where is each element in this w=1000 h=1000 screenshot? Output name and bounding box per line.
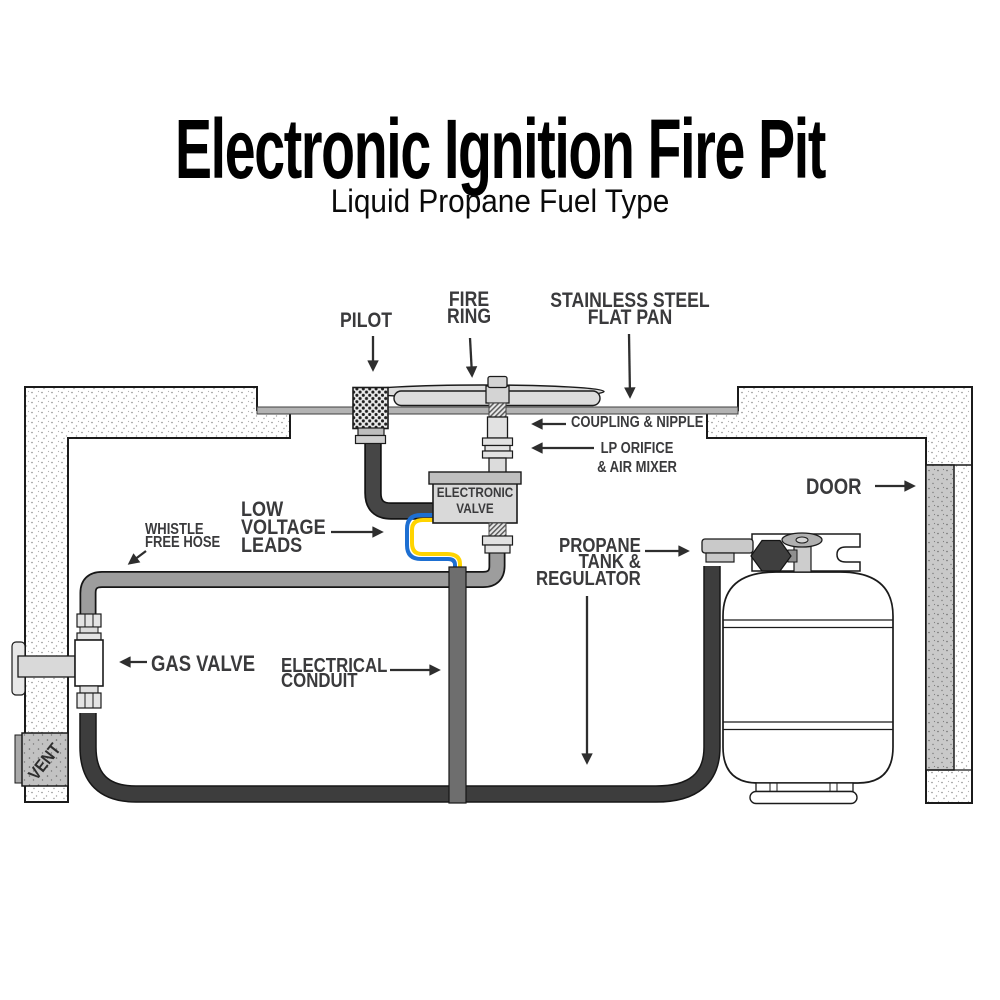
fire-ring-arrow	[470, 338, 472, 375]
label-whistle-hose-line2: FREE HOSE	[145, 537, 220, 550]
label-propane-line3: REGULATOR	[536, 571, 641, 587]
label-electrical-conduit: ELECTRICAL CONDUIT	[281, 659, 387, 689]
gas-valve-top-ring	[80, 627, 98, 633]
coupling-fitting	[488, 417, 508, 438]
pilot-tube-outline	[373, 436, 434, 511]
label-electronic-valve-line2: VALVE	[437, 501, 513, 517]
valve-key-stem	[18, 656, 75, 677]
pilot-collar	[358, 428, 384, 436]
label-low-voltage-line3: LEADS	[241, 537, 326, 555]
label-electronic-valve: ELECTRONIC VALVE	[437, 485, 513, 516]
threaded-nipple	[489, 403, 506, 417]
gas-valve-bottom-ring	[80, 686, 98, 693]
whistle-hose-arrow	[130, 551, 146, 563]
lp-orifice-ring-bottom	[483, 451, 513, 458]
propane-hose-outline	[88, 566, 712, 794]
handwheel-hub	[796, 537, 808, 543]
label-gas-valve: GAS VALVE	[151, 651, 255, 677]
label-lp-orifice: LP ORIFICE & AIR MIXER	[597, 440, 677, 477]
label-door: DOOR	[806, 474, 861, 500]
regulator-cap	[702, 539, 753, 553]
electronic-valve-flange	[429, 472, 521, 484]
tank-foot-bar	[756, 783, 853, 792]
yellow-wire	[412, 520, 460, 572]
lp-orifice-ring-top	[483, 438, 513, 446]
label-coupling-nipple: COUPLING & NIPPLE	[571, 414, 703, 432]
label-fire-ring: FIRE RING	[447, 291, 491, 325]
label-gas-valve-text: GAS VALVE	[151, 651, 255, 677]
fire-ring	[362, 377, 604, 406]
tank-base-ring	[750, 792, 857, 804]
propane-hose-line	[88, 566, 712, 794]
fire-ring-hub	[486, 386, 509, 403]
valve-outlet-ring	[485, 545, 510, 553]
label-lp-orifice-line2: & AIR MIXER	[597, 459, 677, 478]
gas-valve-bottom-nut	[77, 693, 101, 708]
valve-outlet-thread	[489, 523, 506, 536]
flat-pan-arrow	[629, 334, 630, 396]
pilot-burner	[353, 388, 388, 429]
label-whistle-hose: WHISTLE FREE HOSE	[145, 524, 220, 550]
label-lp-orifice-line1: LP ORIFICE	[597, 440, 677, 459]
pilot-supply-tube	[373, 436, 434, 511]
label-coupling-nipple-text: COUPLING & NIPPLE	[571, 414, 703, 432]
pilot-base	[356, 436, 386, 444]
fire-pit-diagram: Electronic Ignition Fire Pit Liquid Prop…	[0, 0, 1000, 1000]
label-pilot: PILOT	[340, 309, 392, 333]
left-wall-structure	[15, 387, 290, 802]
label-flat-pan: STAINLESS STEEL FLAT PAN	[550, 293, 709, 326]
label-fire-ring-line2: RING	[447, 308, 491, 325]
gas-valve-top-ring2	[77, 633, 101, 640]
label-door-text: DOOR	[806, 474, 861, 500]
gas-valve-top-nut	[77, 614, 101, 627]
propane-hose	[88, 566, 712, 794]
fire-ring-cap	[488, 377, 507, 388]
label-electronic-valve-line1: ELECTRONIC	[437, 485, 513, 501]
valve-outlet-nut	[483, 536, 513, 545]
regulator-outlet	[706, 553, 734, 562]
page-subtitle: Liquid Propane Fuel Type	[331, 183, 670, 220]
access-door-panel	[926, 465, 954, 770]
label-low-voltage: LOW VOLTAGE LEADS	[241, 501, 326, 554]
lp-orifice-ring-mid	[485, 446, 510, 452]
electrical-conduit	[449, 567, 466, 803]
label-propane-tank: PROPANE TANK & REGULATOR	[536, 538, 641, 587]
pilot-assembly	[353, 388, 388, 444]
gas-valve-body	[75, 640, 103, 686]
propane-tank	[702, 533, 893, 804]
tank-body	[723, 572, 893, 783]
label-pilot-text: PILOT	[340, 309, 392, 333]
